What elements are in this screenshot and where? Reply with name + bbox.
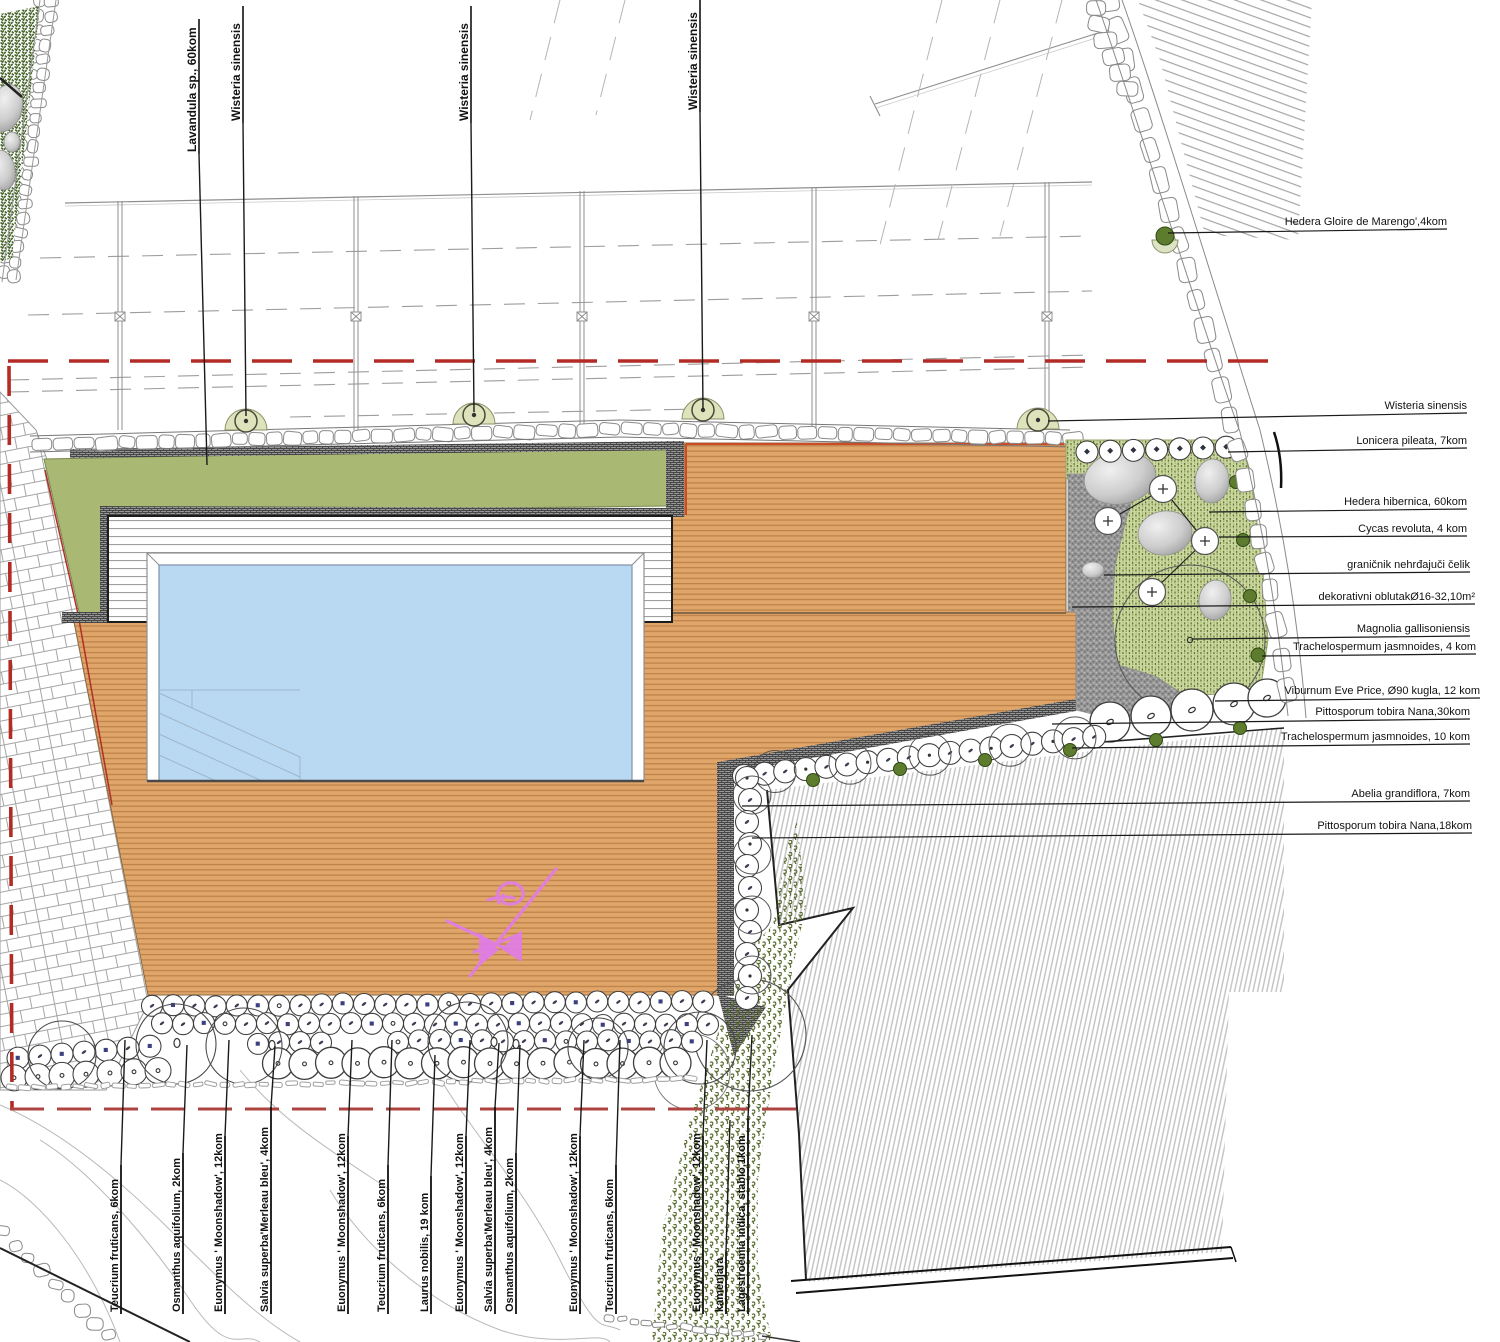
svg-text:Laurus nobilis, 19 kom: Laurus nobilis, 19 kom (419, 1193, 431, 1312)
svg-text:Lagestroemia indica, stablo,1k: Lagestroemia indica, stablo,1kom (736, 1135, 748, 1312)
svg-text:Euonymus ' Moonshadow', 12kom: Euonymus ' Moonshadow', 12kom (568, 1133, 580, 1312)
svg-text:Wisteria sinensis: Wisteria sinensis (229, 23, 243, 121)
svg-text:Trachelospermum jasmnoides, 4: Trachelospermum jasmnoides, 4 kom (1293, 641, 1476, 653)
svg-text:Trachelospermum jasmnoides, 10: Trachelospermum jasmnoides, 10 kom (1281, 731, 1470, 743)
svg-text:Salvia superba'Merleau bleu',: Salvia superba'Merleau bleu', 4kom (259, 1127, 271, 1312)
svg-text:dekorativni oblutakØ16-32,10m²: dekorativni oblutakØ16-32,10m² (1318, 591, 1475, 603)
svg-text:Wisteria sinensis: Wisteria sinensis (686, 12, 700, 110)
svg-text:kamenjara: kamenjara (714, 1257, 726, 1312)
svg-text:Pittosporum tobira Nana,30kom: Pittosporum tobira Nana,30kom (1315, 706, 1470, 718)
svg-text:Osmanthus aquifolium, 2kom: Osmanthus aquifolium, 2kom (171, 1158, 183, 1312)
svg-text:Hedera hibernica, 60kom: Hedera hibernica, 60kom (1344, 496, 1467, 508)
svg-text:Euonymus ' Moonshadow', 12kom: Euonymus ' Moonshadow', 12kom (336, 1133, 348, 1312)
svg-text:Wisteria sinensis: Wisteria sinensis (1384, 400, 1467, 412)
svg-text:Osmanthus aquifolium, 2kom: Osmanthus aquifolium, 2kom (504, 1158, 516, 1312)
svg-text:Salvia superba'Merleau bleu',: Salvia superba'Merleau bleu', 4kom (483, 1127, 495, 1312)
svg-text:Hedera Gloire de Marengo',4kom: Hedera Gloire de Marengo',4kom (1285, 216, 1447, 228)
svg-text:Abelia grandiflora, 7kom: Abelia grandiflora, 7kom (1351, 788, 1470, 800)
svg-text:Wisteria sinensis: Wisteria sinensis (457, 23, 471, 121)
svg-text:Lavandula sp., 60kom: Lavandula sp., 60kom (185, 27, 199, 152)
svg-text:Pittosporum tobira Nana,18kom: Pittosporum tobira Nana,18kom (1317, 820, 1472, 832)
svg-text:Teucrium fruticans, 6kom: Teucrium fruticans, 6kom (376, 1179, 388, 1312)
svg-text:graničnik nehrđajuči čelik: graničnik nehrđajuči čelik (1347, 559, 1470, 571)
svg-text:Euonymus ' Moonshadow', 12kom: Euonymus ' Moonshadow', 12kom (691, 1133, 703, 1312)
svg-text:Cycas revoluta, 4 kom: Cycas revoluta, 4 kom (1358, 523, 1467, 535)
svg-text:Euonymus ' Moonshadow', 12kom: Euonymus ' Moonshadow', 12kom (213, 1133, 225, 1312)
svg-text:Teucrium fruticans, 6kom: Teucrium fruticans, 6kom (604, 1179, 616, 1312)
svg-text:Magnolia gallisoniensis: Magnolia gallisoniensis (1357, 623, 1471, 635)
svg-text:Euonymus ' Moonshadow', 12kom: Euonymus ' Moonshadow', 12kom (454, 1133, 466, 1312)
svg-text:Viburnum Eve Price, Ø90 kugla,: Viburnum Eve Price, Ø90 kugla, 12 kom (1285, 685, 1480, 697)
svg-text:Teucrium fruticans, 6kom: Teucrium fruticans, 6kom (109, 1179, 121, 1312)
svg-text:Lonicera pileata, 7kom: Lonicera pileata, 7kom (1356, 435, 1467, 447)
